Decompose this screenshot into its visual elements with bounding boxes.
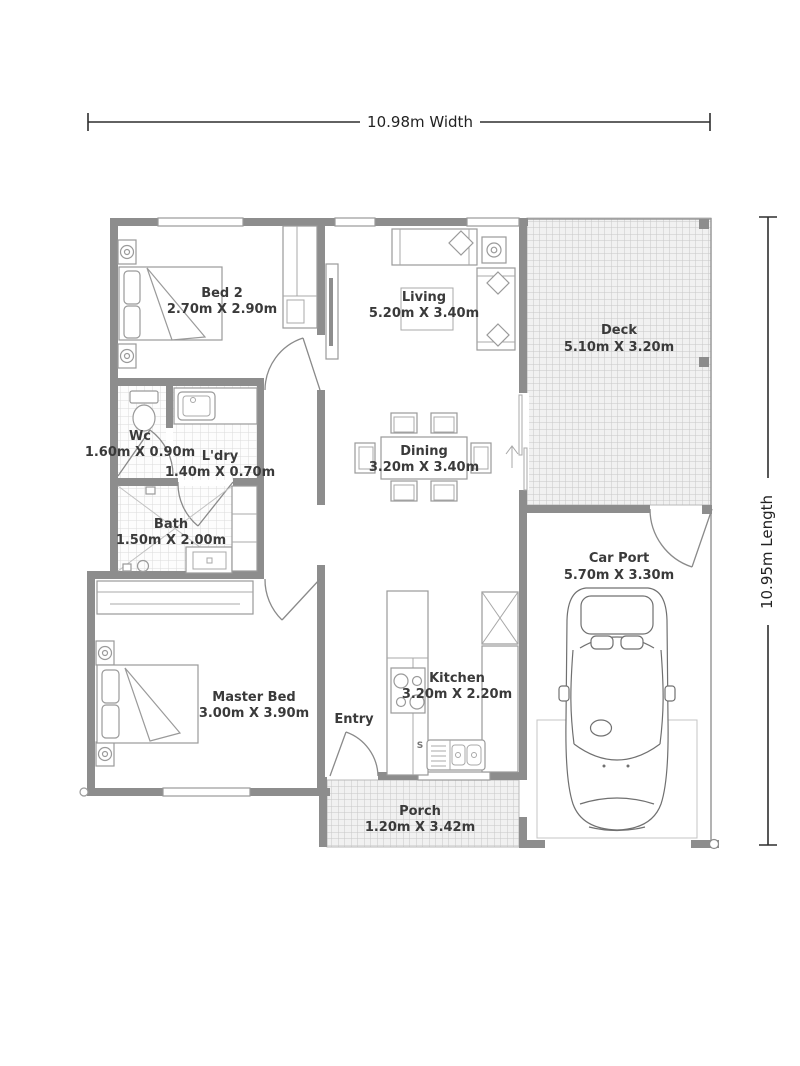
- wardrobe: [97, 581, 253, 614]
- wall-segment: [519, 488, 527, 780]
- bed2-label: Bed 2: [201, 286, 243, 301]
- entry-door: [330, 732, 378, 776]
- entry-label: Entry: [334, 712, 374, 727]
- dimension-length: 10.95m Length: [758, 217, 777, 845]
- wall-segment: [317, 226, 325, 335]
- carport-door: [650, 509, 712, 567]
- tv: [329, 278, 333, 346]
- deck-label: Deck: [601, 323, 637, 338]
- width-dimension-label: 10.98m Width: [367, 113, 473, 131]
- wall-segment: [166, 386, 173, 428]
- wall-segment: [317, 390, 325, 505]
- carport-post: [710, 840, 719, 849]
- car-headrest: [591, 636, 613, 649]
- carport-size: 5.70m X 3.30m: [564, 568, 674, 583]
- kitchen-sink: [427, 740, 485, 770]
- wall-segment: [250, 788, 330, 796]
- window: [163, 788, 250, 796]
- porch-label: Porch: [399, 804, 441, 819]
- pillow: [102, 705, 119, 738]
- chair: [431, 413, 457, 433]
- wc-size: 1.60m X 0.90m: [85, 445, 195, 460]
- sink-label: S: [417, 741, 423, 751]
- toilet-cistern: [130, 391, 158, 403]
- floor-plan-page: 10.98m Width 10.95m Length: [0, 0, 800, 1066]
- pillow: [102, 670, 119, 703]
- ldry-size: 1.40m X 0.70m: [165, 465, 275, 480]
- dining-label: Dining: [400, 444, 448, 459]
- toilet-bowl: [133, 405, 155, 431]
- wc-fixtures: [130, 391, 158, 431]
- wall-segment: [257, 386, 264, 579]
- side-table: [482, 237, 506, 263]
- kitchen-counter: [482, 646, 518, 772]
- linen-closet: [232, 486, 257, 571]
- window: [467, 218, 519, 226]
- chair: [391, 481, 417, 501]
- step-arrow-icon: [506, 446, 518, 468]
- deck-post: [699, 357, 709, 367]
- wall-segment: [317, 565, 325, 788]
- wall-segment: [87, 571, 263, 579]
- wall-segment: [490, 772, 527, 780]
- deck-sliding-door: [517, 393, 529, 490]
- living-size: 5.20m X 3.40m: [369, 306, 479, 321]
- master-size: 3.00m X 3.90m: [199, 706, 309, 721]
- living-label: Living: [402, 290, 446, 305]
- master-label: Master Bed: [212, 690, 295, 705]
- window: [418, 772, 490, 780]
- kitchen-size: 3.20m X 2.20m: [402, 687, 512, 702]
- window: [158, 218, 243, 226]
- wardrobe: [283, 226, 317, 328]
- carport-label: Car Port: [589, 551, 649, 566]
- chair: [391, 413, 417, 433]
- bed2-door: [265, 338, 320, 390]
- bed2-size: 2.70m X 2.90m: [167, 302, 277, 317]
- dimension-width: 10.98m Width: [88, 113, 710, 131]
- wall-segment: [87, 788, 163, 796]
- wall-segment: [519, 840, 545, 848]
- pillow: [124, 306, 140, 338]
- master-door: [265, 579, 320, 620]
- wall-segment: [527, 505, 650, 513]
- dining-size: 3.20m X 3.40m: [369, 460, 479, 475]
- porch-size: 1.20m X 3.42m: [365, 820, 475, 835]
- downpipe: [80, 788, 88, 796]
- bath-size: 1.50m X 2.00m: [116, 533, 226, 548]
- car-mirror: [559, 686, 569, 701]
- deck-post: [699, 219, 709, 229]
- car-headrest: [621, 636, 643, 649]
- chair: [431, 481, 457, 501]
- wall-segment: [110, 218, 118, 578]
- length-dimension-label: 10.95m Length: [758, 495, 776, 609]
- car: [559, 588, 675, 831]
- ldry-label: L'dry: [202, 449, 239, 464]
- window: [335, 218, 375, 226]
- ldry-fixtures: [174, 388, 257, 424]
- bath-label: Bath: [154, 517, 188, 532]
- deck-size: 5.10m X 3.20m: [564, 340, 674, 355]
- master-furniture: [96, 581, 253, 766]
- pillow: [124, 271, 140, 304]
- car-mirror: [665, 686, 675, 701]
- wall-segment: [519, 218, 527, 395]
- wall-segment: [87, 571, 95, 796]
- floor-plan: 10.98m Width 10.95m Length: [0, 0, 800, 1066]
- wall-segment: [110, 378, 264, 386]
- wc-label: Wc: [129, 429, 151, 444]
- kitchen-label: Kitchen: [429, 671, 485, 686]
